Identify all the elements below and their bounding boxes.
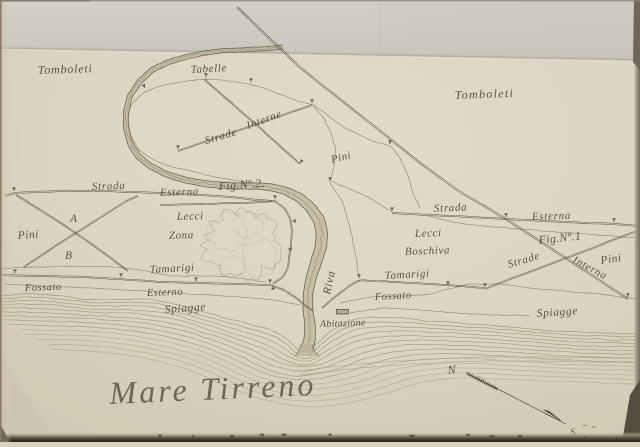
svg-text:Tomboleti: Tomboleti [455,86,515,102]
svg-text:Tamarigi: Tamarigi [385,268,430,282]
svg-text:Boschiva: Boschiva [405,244,451,258]
svg-text:Strada: Strada [434,201,468,215]
svg-text:Pini: Pini [16,229,39,243]
svg-text:Abitazione: Abitazione [319,317,366,330]
svg-text:Esterno: Esterno [146,287,184,299]
svg-text:Tomboleti: Tomboleti [38,61,93,77]
svg-text:Zona: Zona [169,229,194,242]
svg-text:Strada: Strada [92,180,126,193]
svg-text:Fossato: Fossato [374,290,412,303]
svg-text:B: B [65,250,72,262]
svg-text:Esterna: Esterna [531,210,572,223]
svg-text:Fossato: Fossato [24,282,62,294]
svg-text:Tabelle: Tabelle [191,62,228,76]
svg-text:Esterna: Esterna [159,186,200,199]
svg-text:Lecci: Lecci [176,210,204,223]
svg-text:Lecci: Lecci [414,227,442,240]
svg-text:A: A [69,213,78,225]
svg-text:Tamarigi: Tamarigi [150,262,195,276]
